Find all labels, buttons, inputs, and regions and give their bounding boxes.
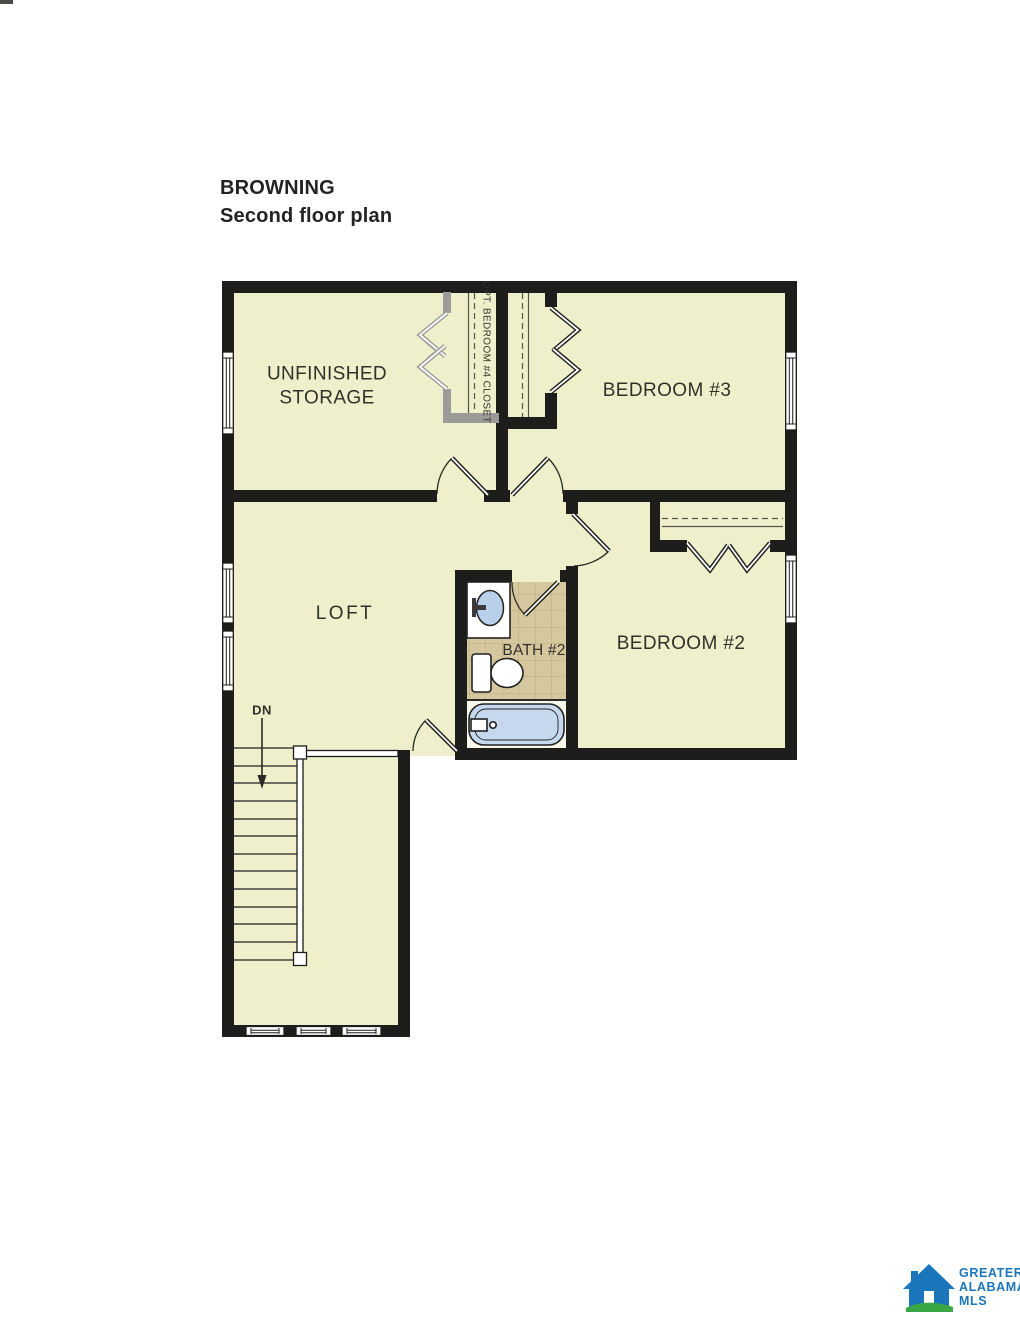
plan-subtitle: Second floor plan [220, 202, 392, 230]
scan-artifact [0, 0, 13, 4]
plan-title-block: BROWNING Second floor plan [220, 174, 392, 230]
mls-logo: GREATER ALABAMA MLS [903, 1261, 1020, 1313]
stairs-down-label: DN [252, 703, 272, 718]
mls-house-icon [903, 1261, 955, 1313]
room-label-bath-2: BATH #2 [502, 642, 565, 660]
floor-plan: UNFINISHED STORAGE BEDROOM #3 LOFT BATH … [222, 281, 797, 1037]
room-label-loft: LOFT [316, 603, 375, 625]
mls-logo-text: GREATER ALABAMA MLS [959, 1266, 1020, 1308]
optional-closet-label: OPT. BEDROOM #4 CLOSET [481, 281, 492, 423]
vanity-sink [467, 582, 510, 638]
plan-name: BROWNING [220, 174, 392, 202]
room-label-bedroom-2: BEDROOM #2 [617, 633, 746, 655]
logo-line-2: ALABAMA [959, 1280, 1020, 1294]
logo-line-3: MLS [959, 1294, 1020, 1308]
logo-line-1: GREATER [959, 1266, 1020, 1280]
bathtub [469, 704, 564, 745]
room-label-unfinished-storage: UNFINISHED STORAGE [252, 363, 402, 410]
room-label-bedroom-3: BEDROOM #3 [603, 380, 732, 402]
